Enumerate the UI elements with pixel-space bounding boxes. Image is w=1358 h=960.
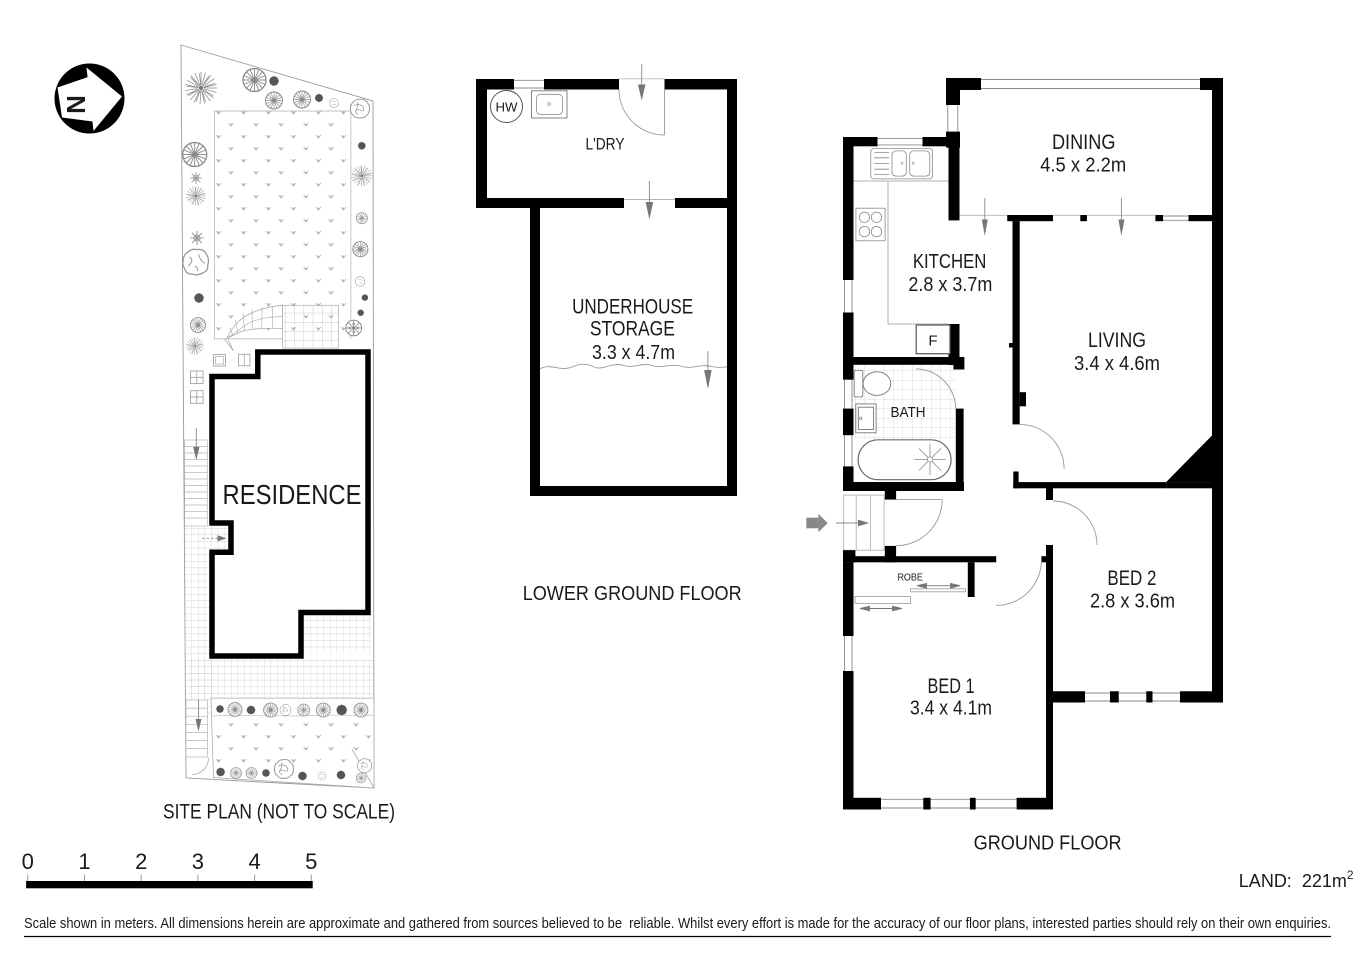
svg-text:3.3 x 4.7m: 3.3 x 4.7m: [592, 341, 675, 364]
svg-text:BED 1: BED 1: [928, 675, 975, 698]
svg-text:ROBE: ROBE: [897, 572, 923, 584]
svg-text:DINING: DINING: [1052, 131, 1116, 154]
svg-text:2.8 x 3.7m: 2.8 x 3.7m: [908, 273, 992, 296]
svg-text:3: 3: [192, 849, 204, 874]
svg-text:4: 4: [248, 849, 260, 874]
svg-text:BATH: BATH: [891, 405, 926, 421]
svg-text:SITE PLAN (NOT TO SCALE): SITE PLAN (NOT TO SCALE): [163, 800, 395, 824]
svg-text:3.4 x 4.6m: 3.4 x 4.6m: [1074, 352, 1160, 375]
svg-text:5: 5: [305, 849, 317, 874]
svg-text:2.8 x 3.6m: 2.8 x 3.6m: [1090, 590, 1175, 613]
svg-text:2: 2: [135, 849, 147, 874]
svg-text:KITCHEN: KITCHEN: [913, 251, 987, 273]
svg-text:F: F: [928, 333, 937, 350]
svg-text:L'DRY: L'DRY: [586, 135, 625, 154]
svg-text:Scale shown in meters. All dim: Scale shown in meters. All dimensions he…: [24, 915, 1331, 932]
svg-text:HW: HW: [496, 100, 519, 115]
svg-text:0: 0: [22, 849, 34, 874]
svg-text:3.4 x 4.1m: 3.4 x 4.1m: [910, 697, 992, 720]
svg-text:1: 1: [78, 849, 90, 874]
svg-text:UNDERHOUSE: UNDERHOUSE: [572, 296, 693, 319]
svg-text:STORAGE: STORAGE: [590, 318, 675, 341]
svg-text:RESIDENCE: RESIDENCE: [223, 479, 362, 510]
svg-text:4.5 x 2.2m: 4.5 x 2.2m: [1040, 153, 1126, 176]
svg-text:BED 2: BED 2: [1107, 567, 1156, 590]
svg-text:LOWER GROUND FLOOR: LOWER GROUND FLOOR: [523, 582, 742, 605]
svg-text:LAND: 221m2: LAND: 221m2: [1239, 868, 1354, 891]
svg-text:N: N: [61, 95, 91, 114]
svg-text:LIVING: LIVING: [1088, 329, 1146, 352]
svg-text:GROUND FLOOR: GROUND FLOOR: [974, 832, 1122, 854]
